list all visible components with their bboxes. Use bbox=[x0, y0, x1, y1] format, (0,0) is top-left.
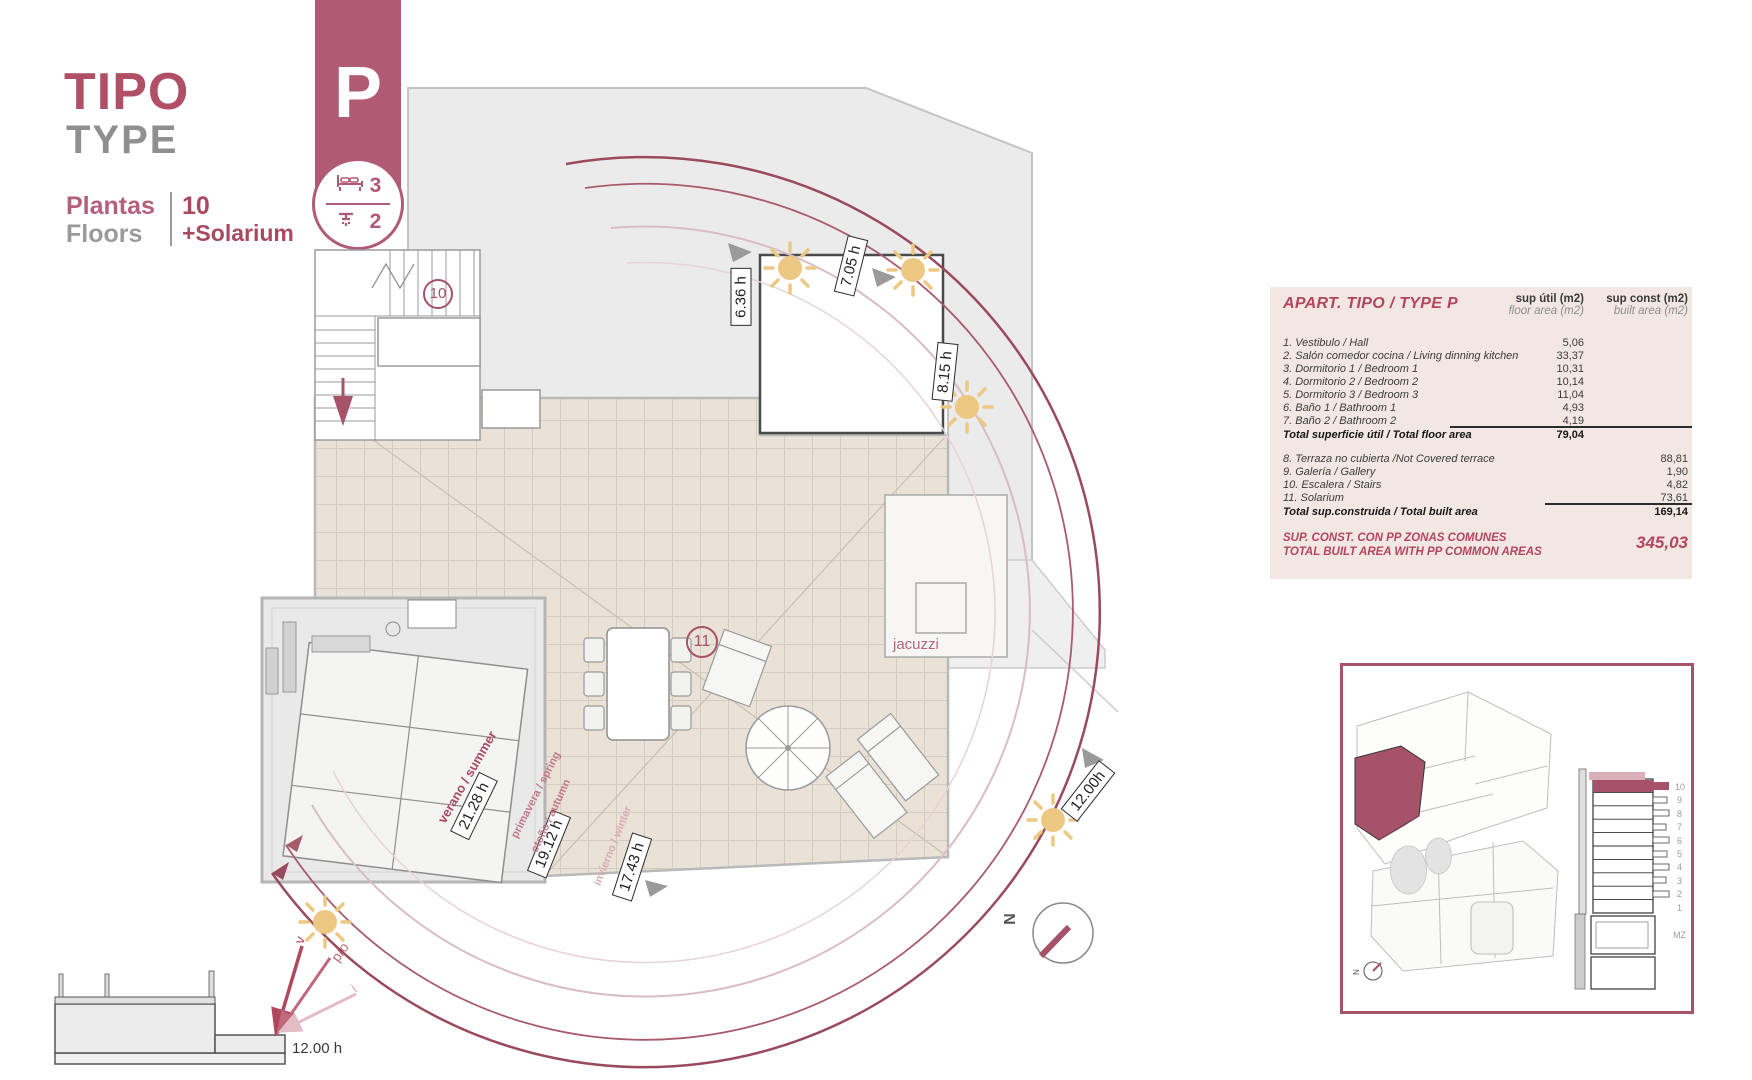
north-label: N bbox=[999, 913, 1017, 925]
total-floor-row: Total superficie útil / Total floor area… bbox=[1283, 429, 1688, 442]
table-row: 8. Terraza no cubierta /Not Covered terr… bbox=[1283, 453, 1688, 466]
table-row: 6. Baño 1 / Bathroom 14,93 bbox=[1283, 402, 1688, 415]
inset-north-label: N bbox=[1352, 969, 1361, 975]
table-row: 9. Galería / Gallery1,90 bbox=[1283, 466, 1688, 479]
table-row: 3. Dormitorio 1 / Bedroom 110,31 bbox=[1283, 363, 1688, 376]
table-row: 1. Vestibulo / Hall5,06 bbox=[1283, 337, 1688, 350]
floor-label: 10 bbox=[1675, 782, 1685, 792]
building-section bbox=[1575, 769, 1669, 989]
summary-line-es: SUP. CONST. CON PP ZONAS COMUNES bbox=[1283, 532, 1506, 544]
room-number-stairs: 10 bbox=[423, 279, 453, 309]
floor-label: 3 bbox=[1677, 876, 1682, 886]
elevation-profile bbox=[55, 971, 285, 1064]
jacuzzi bbox=[885, 495, 1007, 657]
floor-label: 7 bbox=[1677, 822, 1682, 832]
table-row: 5. Dormitorio 3 / Bedroom 311,04 bbox=[1283, 389, 1688, 402]
floor-label: 2 bbox=[1677, 889, 1682, 899]
built-area-column-header: sup const (m2) built area (m2) bbox=[1606, 293, 1688, 317]
site-plan-inset: 10 9 8 7 6 5 4 3 2 1 MZ N bbox=[1340, 663, 1694, 1014]
pergola-room bbox=[262, 598, 545, 883]
dining-set bbox=[584, 628, 691, 740]
floor-label: 6 bbox=[1677, 836, 1682, 846]
compass bbox=[1033, 903, 1093, 963]
floor-label: 4 bbox=[1677, 862, 1682, 872]
table-row: 2. Salón comedor cocina / Living dinning… bbox=[1283, 350, 1688, 363]
room-number-solarium: 11 bbox=[686, 626, 718, 658]
total-rule bbox=[1545, 503, 1692, 505]
table-row: 10. Escalera / Stairs4,82 bbox=[1283, 479, 1688, 492]
table-row: 4. Dormitorio 2 / Bedroom 210,14 bbox=[1283, 376, 1688, 389]
total-rule bbox=[1450, 426, 1692, 428]
sun-icon bbox=[765, 243, 815, 293]
inset-compass: N bbox=[1352, 962, 1382, 980]
floor-label: 9 bbox=[1677, 795, 1682, 805]
floor-label: 8 bbox=[1677, 809, 1682, 819]
table-title: APART. TIPO / TYPE P bbox=[1283, 295, 1458, 313]
summary-line-en: TOTAL BUILT AREA WITH PP COMMON AREAS bbox=[1283, 546, 1542, 558]
summary-value: 345,03 bbox=[1636, 533, 1688, 553]
floor-label: 1 bbox=[1677, 903, 1682, 913]
section-time-label: 12.00 h bbox=[292, 1040, 342, 1057]
total-built-row: Total sup.construida / Total built area1… bbox=[1283, 506, 1688, 519]
parasol bbox=[746, 706, 830, 790]
floor-label: 5 bbox=[1677, 849, 1682, 859]
jacuzzi-label: jacuzzi bbox=[893, 636, 939, 653]
terrace-cabinet bbox=[482, 390, 540, 428]
floor-label: MZ bbox=[1673, 930, 1686, 940]
floor-area-column-header: sup útil (m2) floor area (m2) bbox=[1509, 293, 1584, 317]
floor-plan-page: TIPO TYPE Plantas Floors 10 +Solarium P … bbox=[0, 0, 1752, 1080]
hour-label-636: 6.36 h bbox=[731, 268, 752, 326]
areas-table: APART. TIPO / TYPE P sup útil (m2) floor… bbox=[1270, 287, 1692, 579]
sun-icon bbox=[888, 245, 938, 295]
stairs bbox=[315, 250, 480, 440]
